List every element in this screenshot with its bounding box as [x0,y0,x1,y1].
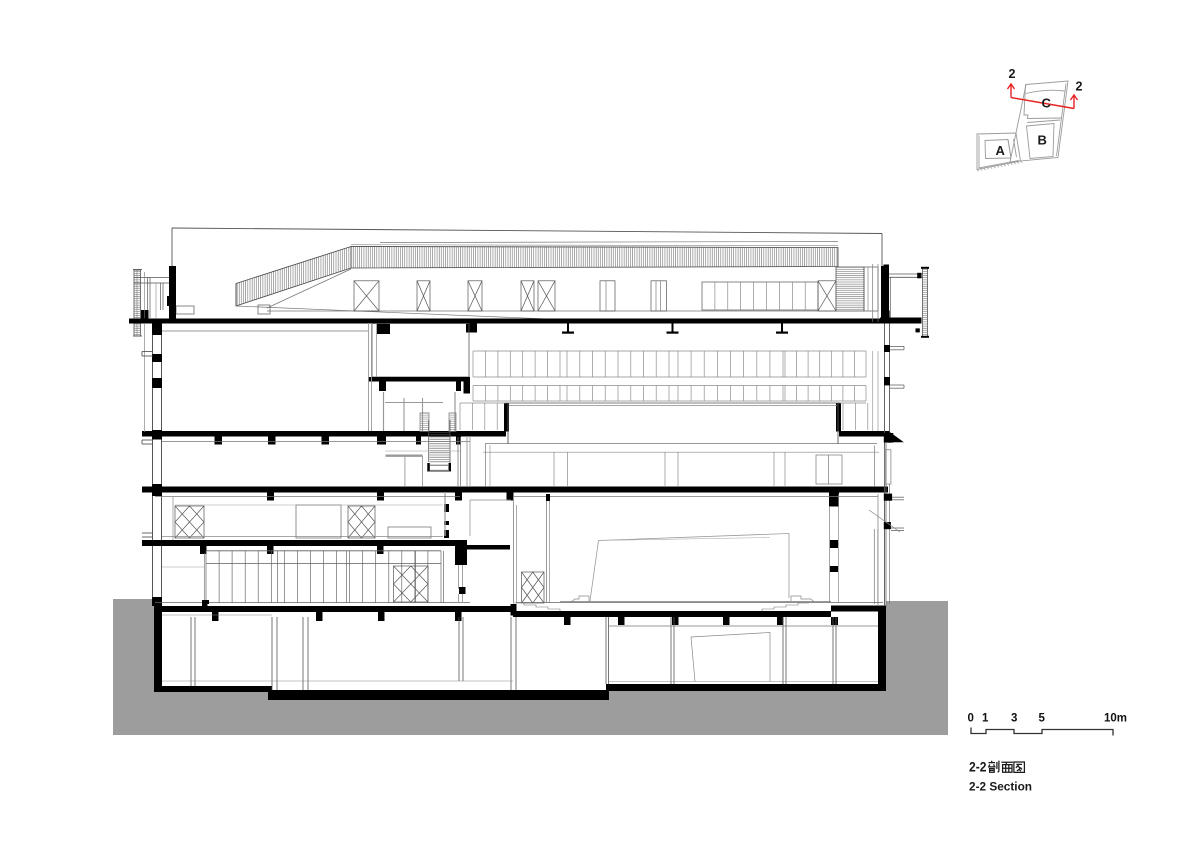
svg-text:5: 5 [1039,713,1046,725]
svg-text:2-2: 2-2 [969,760,987,775]
svg-text:2-2 Section: 2-2 Section [969,780,1032,794]
svg-text:A: A [996,143,1006,158]
svg-text:2: 2 [1076,80,1083,94]
svg-text:0: 0 [968,713,974,725]
svg-text:3: 3 [1011,713,1017,725]
svg-text:10m: 10m [1104,713,1127,725]
svg-text:B: B [1038,133,1047,148]
svg-text:1: 1 [982,713,989,725]
svg-text:C: C [1042,96,1052,111]
svg-text:2: 2 [1009,67,1016,81]
